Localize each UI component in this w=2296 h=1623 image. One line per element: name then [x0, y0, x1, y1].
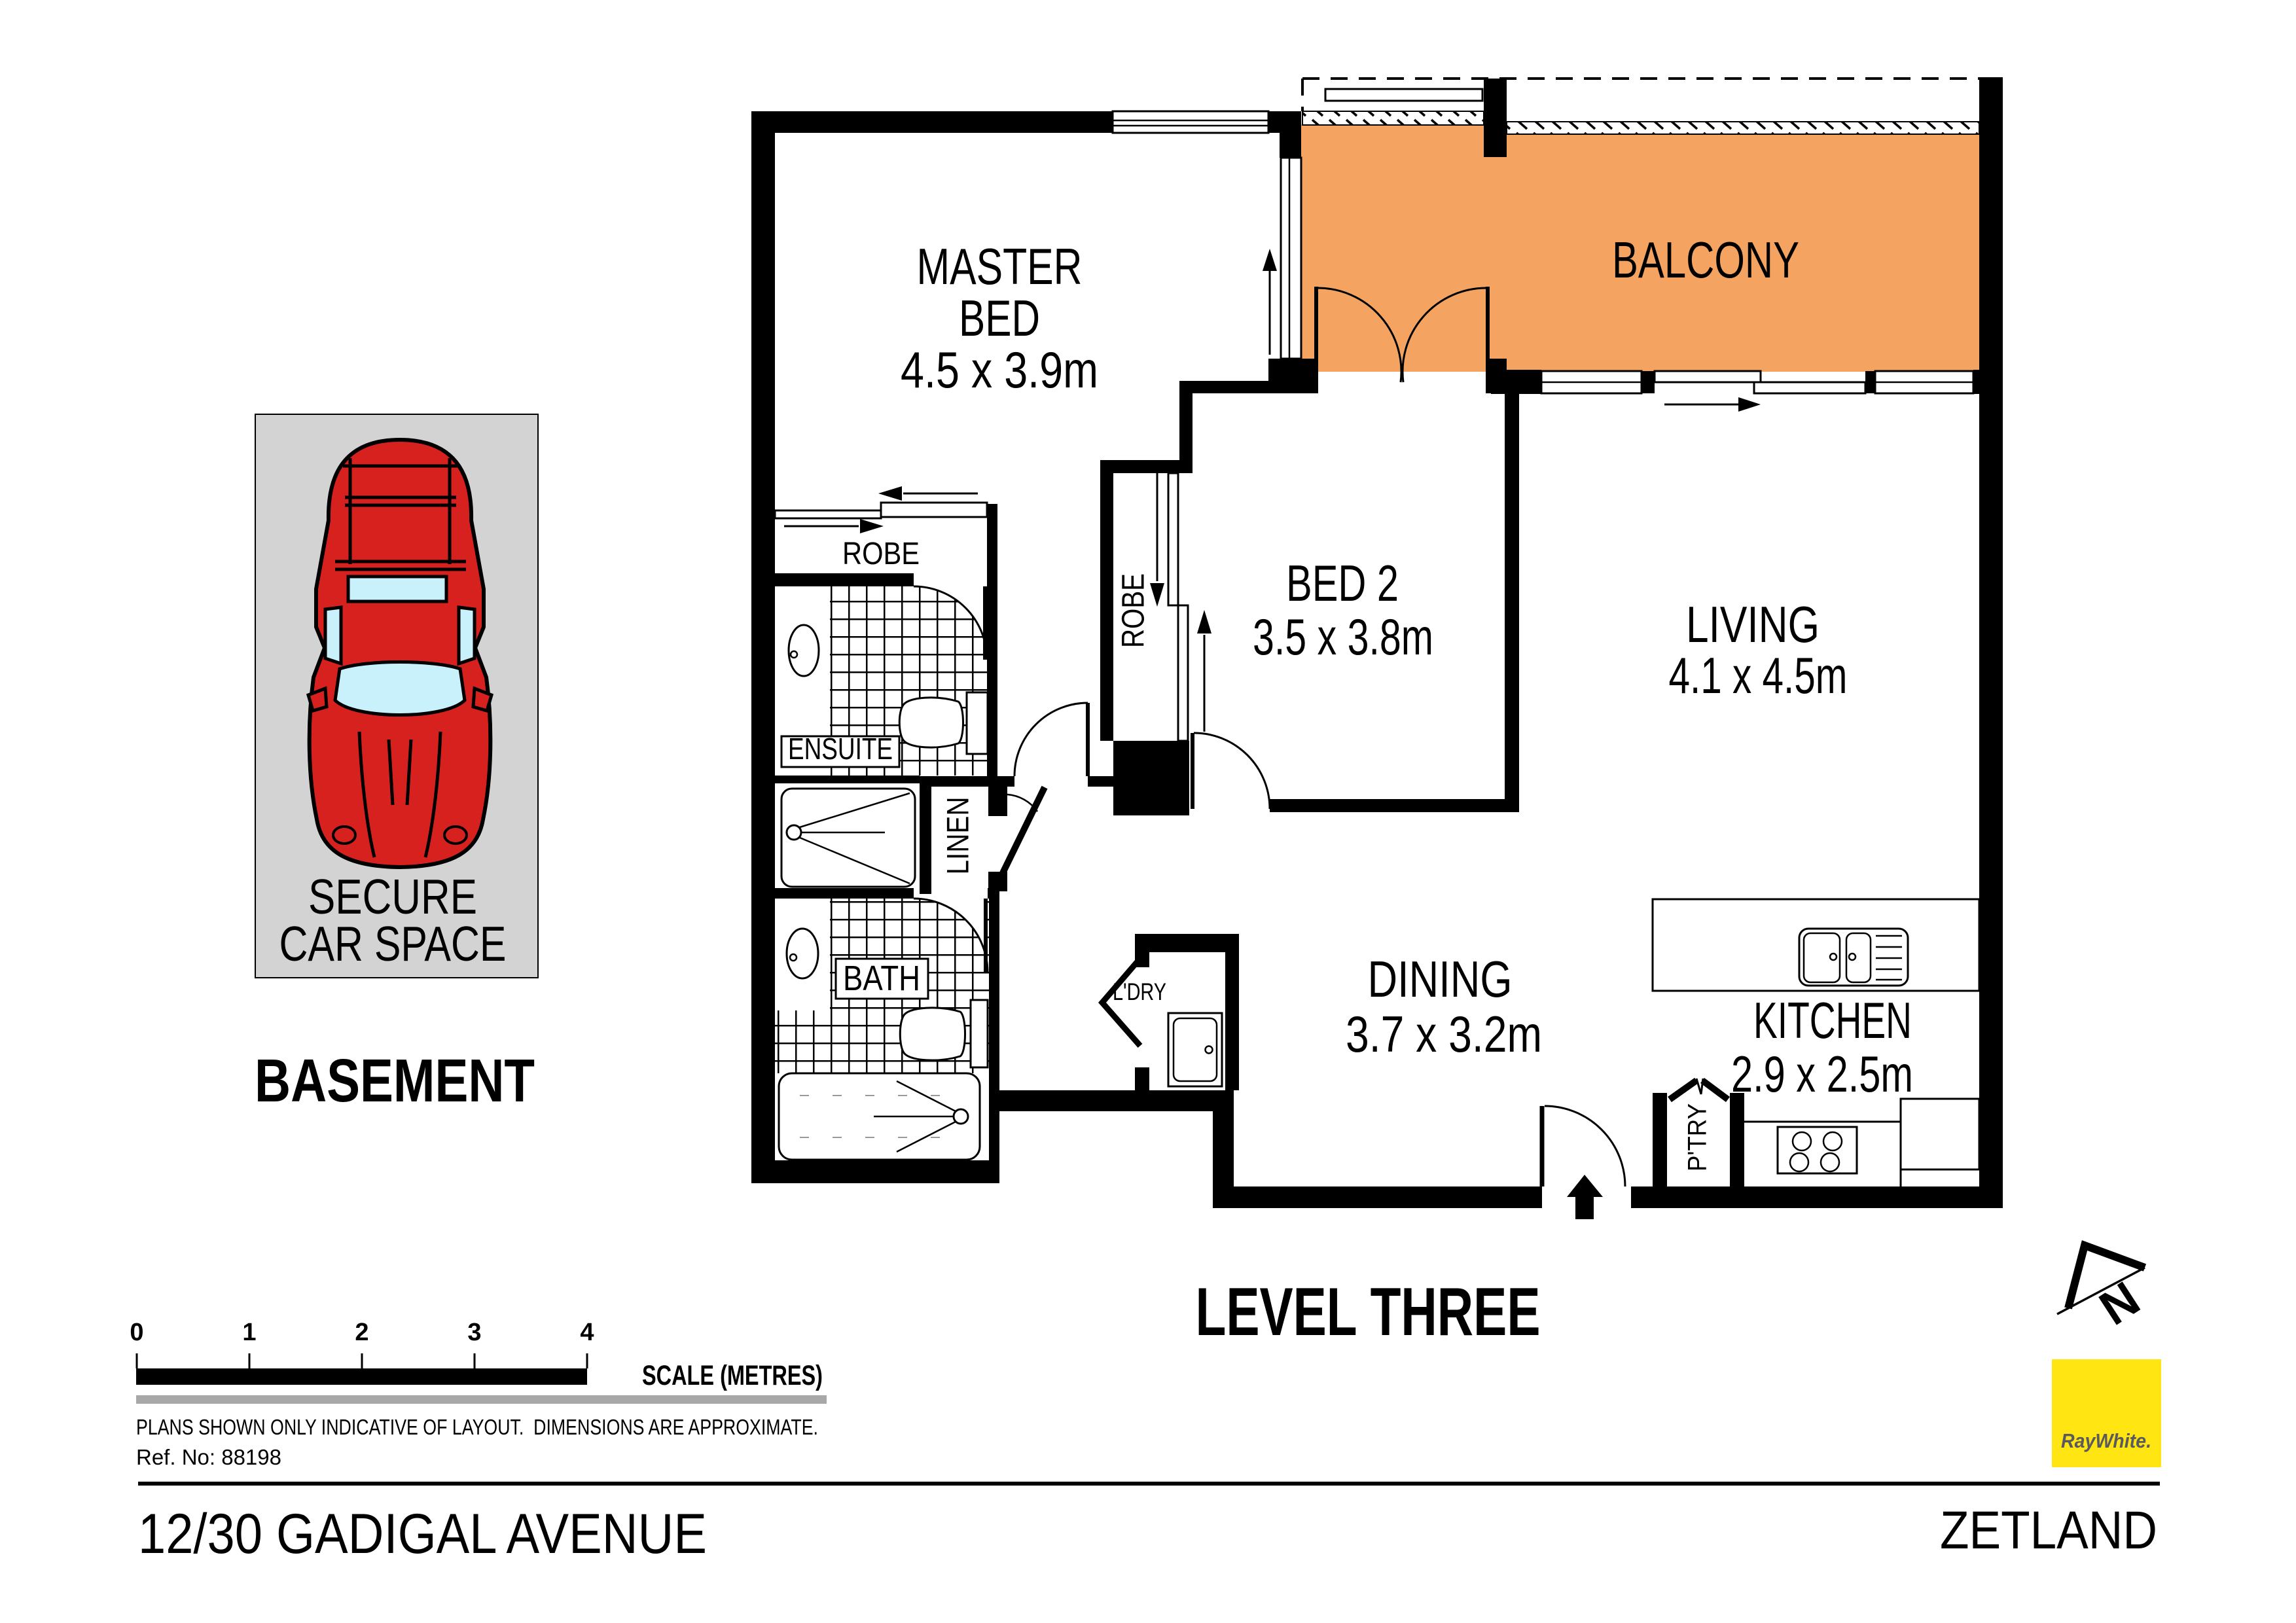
svg-text:BASEMENT: BASEMENT [255, 1046, 535, 1115]
svg-text:SCALE (METRES): SCALE (METRES) [642, 1360, 823, 1391]
svg-text:LIVING: LIVING [1686, 596, 1820, 653]
svg-text:4.5 x 3.9m: 4.5 x 3.9m [901, 341, 1098, 399]
svg-text:ENSUITE: ENSUITE [788, 732, 893, 766]
svg-text:CAR SPACE: CAR SPACE [279, 916, 507, 971]
svg-text:MASTER: MASTER [917, 238, 1083, 295]
svg-text:L'DRY: L'DRY [1113, 978, 1166, 1005]
svg-text:LINEN: LINEN [940, 797, 975, 875]
svg-text:BALCONY: BALCONY [1612, 231, 1799, 289]
svg-text:2.9 x 2.5m: 2.9 x 2.5m [1731, 1045, 1913, 1103]
svg-text:4.1 x 4.5m: 4.1 x 4.5m [1669, 647, 1848, 704]
svg-text:3.5 x 3.8m: 3.5 x 3.8m [1253, 608, 1433, 666]
svg-text:BED: BED [959, 289, 1040, 347]
svg-text:LEVEL THREE: LEVEL THREE [1196, 1274, 1541, 1350]
svg-text:3: 3 [467, 1319, 481, 1346]
svg-text:DINING: DINING [1368, 950, 1513, 1008]
svg-text:RayWhite.: RayWhite. [2061, 1429, 2151, 1452]
svg-text:P'TRY: P'TRY [1683, 1103, 1712, 1171]
svg-text:2: 2 [355, 1319, 368, 1346]
svg-text:PLANS SHOWN ONLY INDICATIVE OF: PLANS SHOWN ONLY INDICATIVE OF LAYOUT. D… [136, 1415, 818, 1439]
svg-text:KITCHEN: KITCHEN [1753, 991, 1912, 1049]
svg-text:ROBE: ROBE [842, 537, 920, 571]
svg-text:1: 1 [242, 1319, 256, 1346]
svg-text:4: 4 [580, 1319, 594, 1346]
svg-text:BED 2: BED 2 [1286, 554, 1399, 612]
svg-text:Ref. No: 88198: Ref. No: 88198 [136, 1445, 281, 1469]
svg-text:12/30 GADIGAL AVENUE: 12/30 GADIGAL AVENUE [138, 1503, 707, 1565]
svg-text:BATH: BATH [843, 959, 920, 998]
svg-text:3.7 x 3.2m: 3.7 x 3.2m [1346, 1005, 1542, 1063]
svg-text:ZETLAND: ZETLAND [1940, 1501, 2157, 1560]
svg-text:ROBE: ROBE [1117, 573, 1151, 648]
svg-text:0: 0 [130, 1319, 143, 1346]
